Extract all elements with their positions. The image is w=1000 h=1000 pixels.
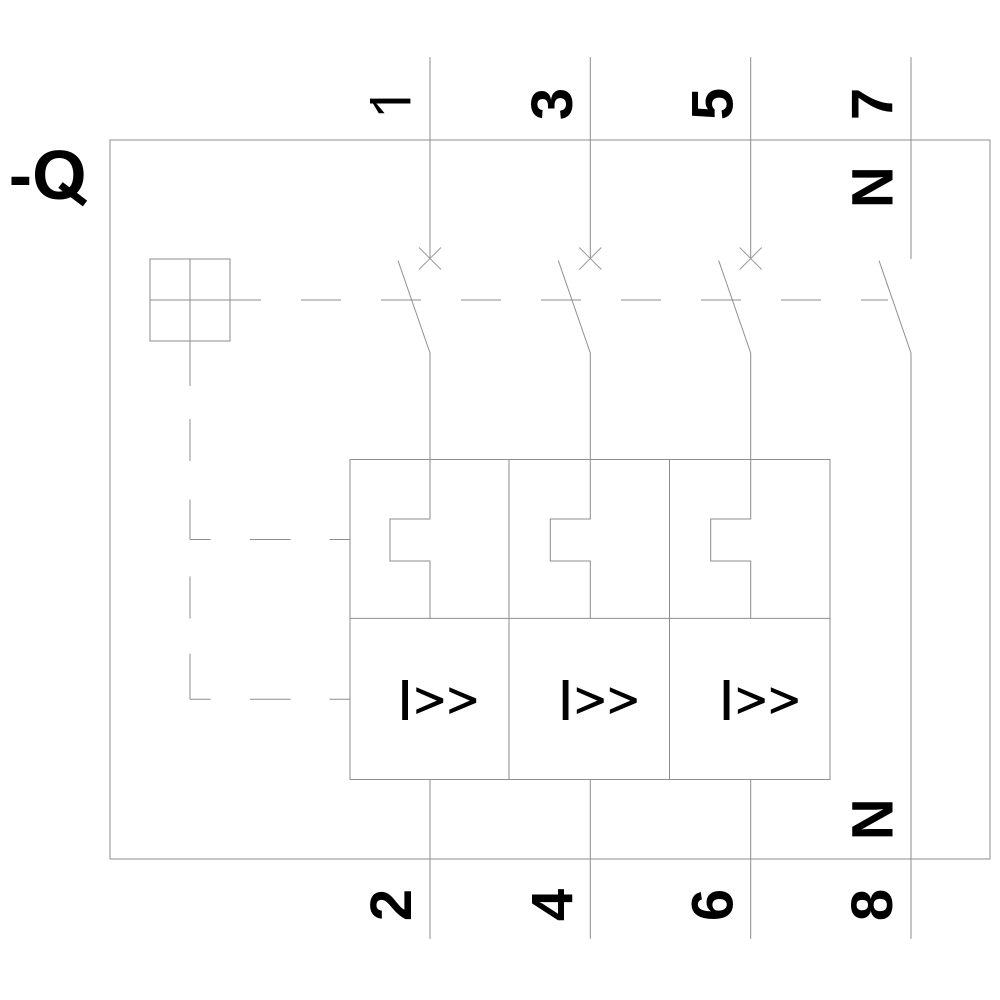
svg-text:7: 7	[840, 88, 905, 120]
svg-text:8: 8	[840, 889, 905, 921]
svg-text:N: N	[841, 798, 906, 840]
svg-text:2: 2	[359, 889, 424, 921]
svg-text:4: 4	[520, 889, 585, 921]
svg-text:N: N	[841, 166, 906, 208]
svg-text:-O: -O	[9, 136, 87, 214]
svg-text:5: 5	[681, 88, 746, 120]
svg-text:6: 6	[681, 889, 746, 921]
svg-text:3: 3	[520, 88, 585, 120]
